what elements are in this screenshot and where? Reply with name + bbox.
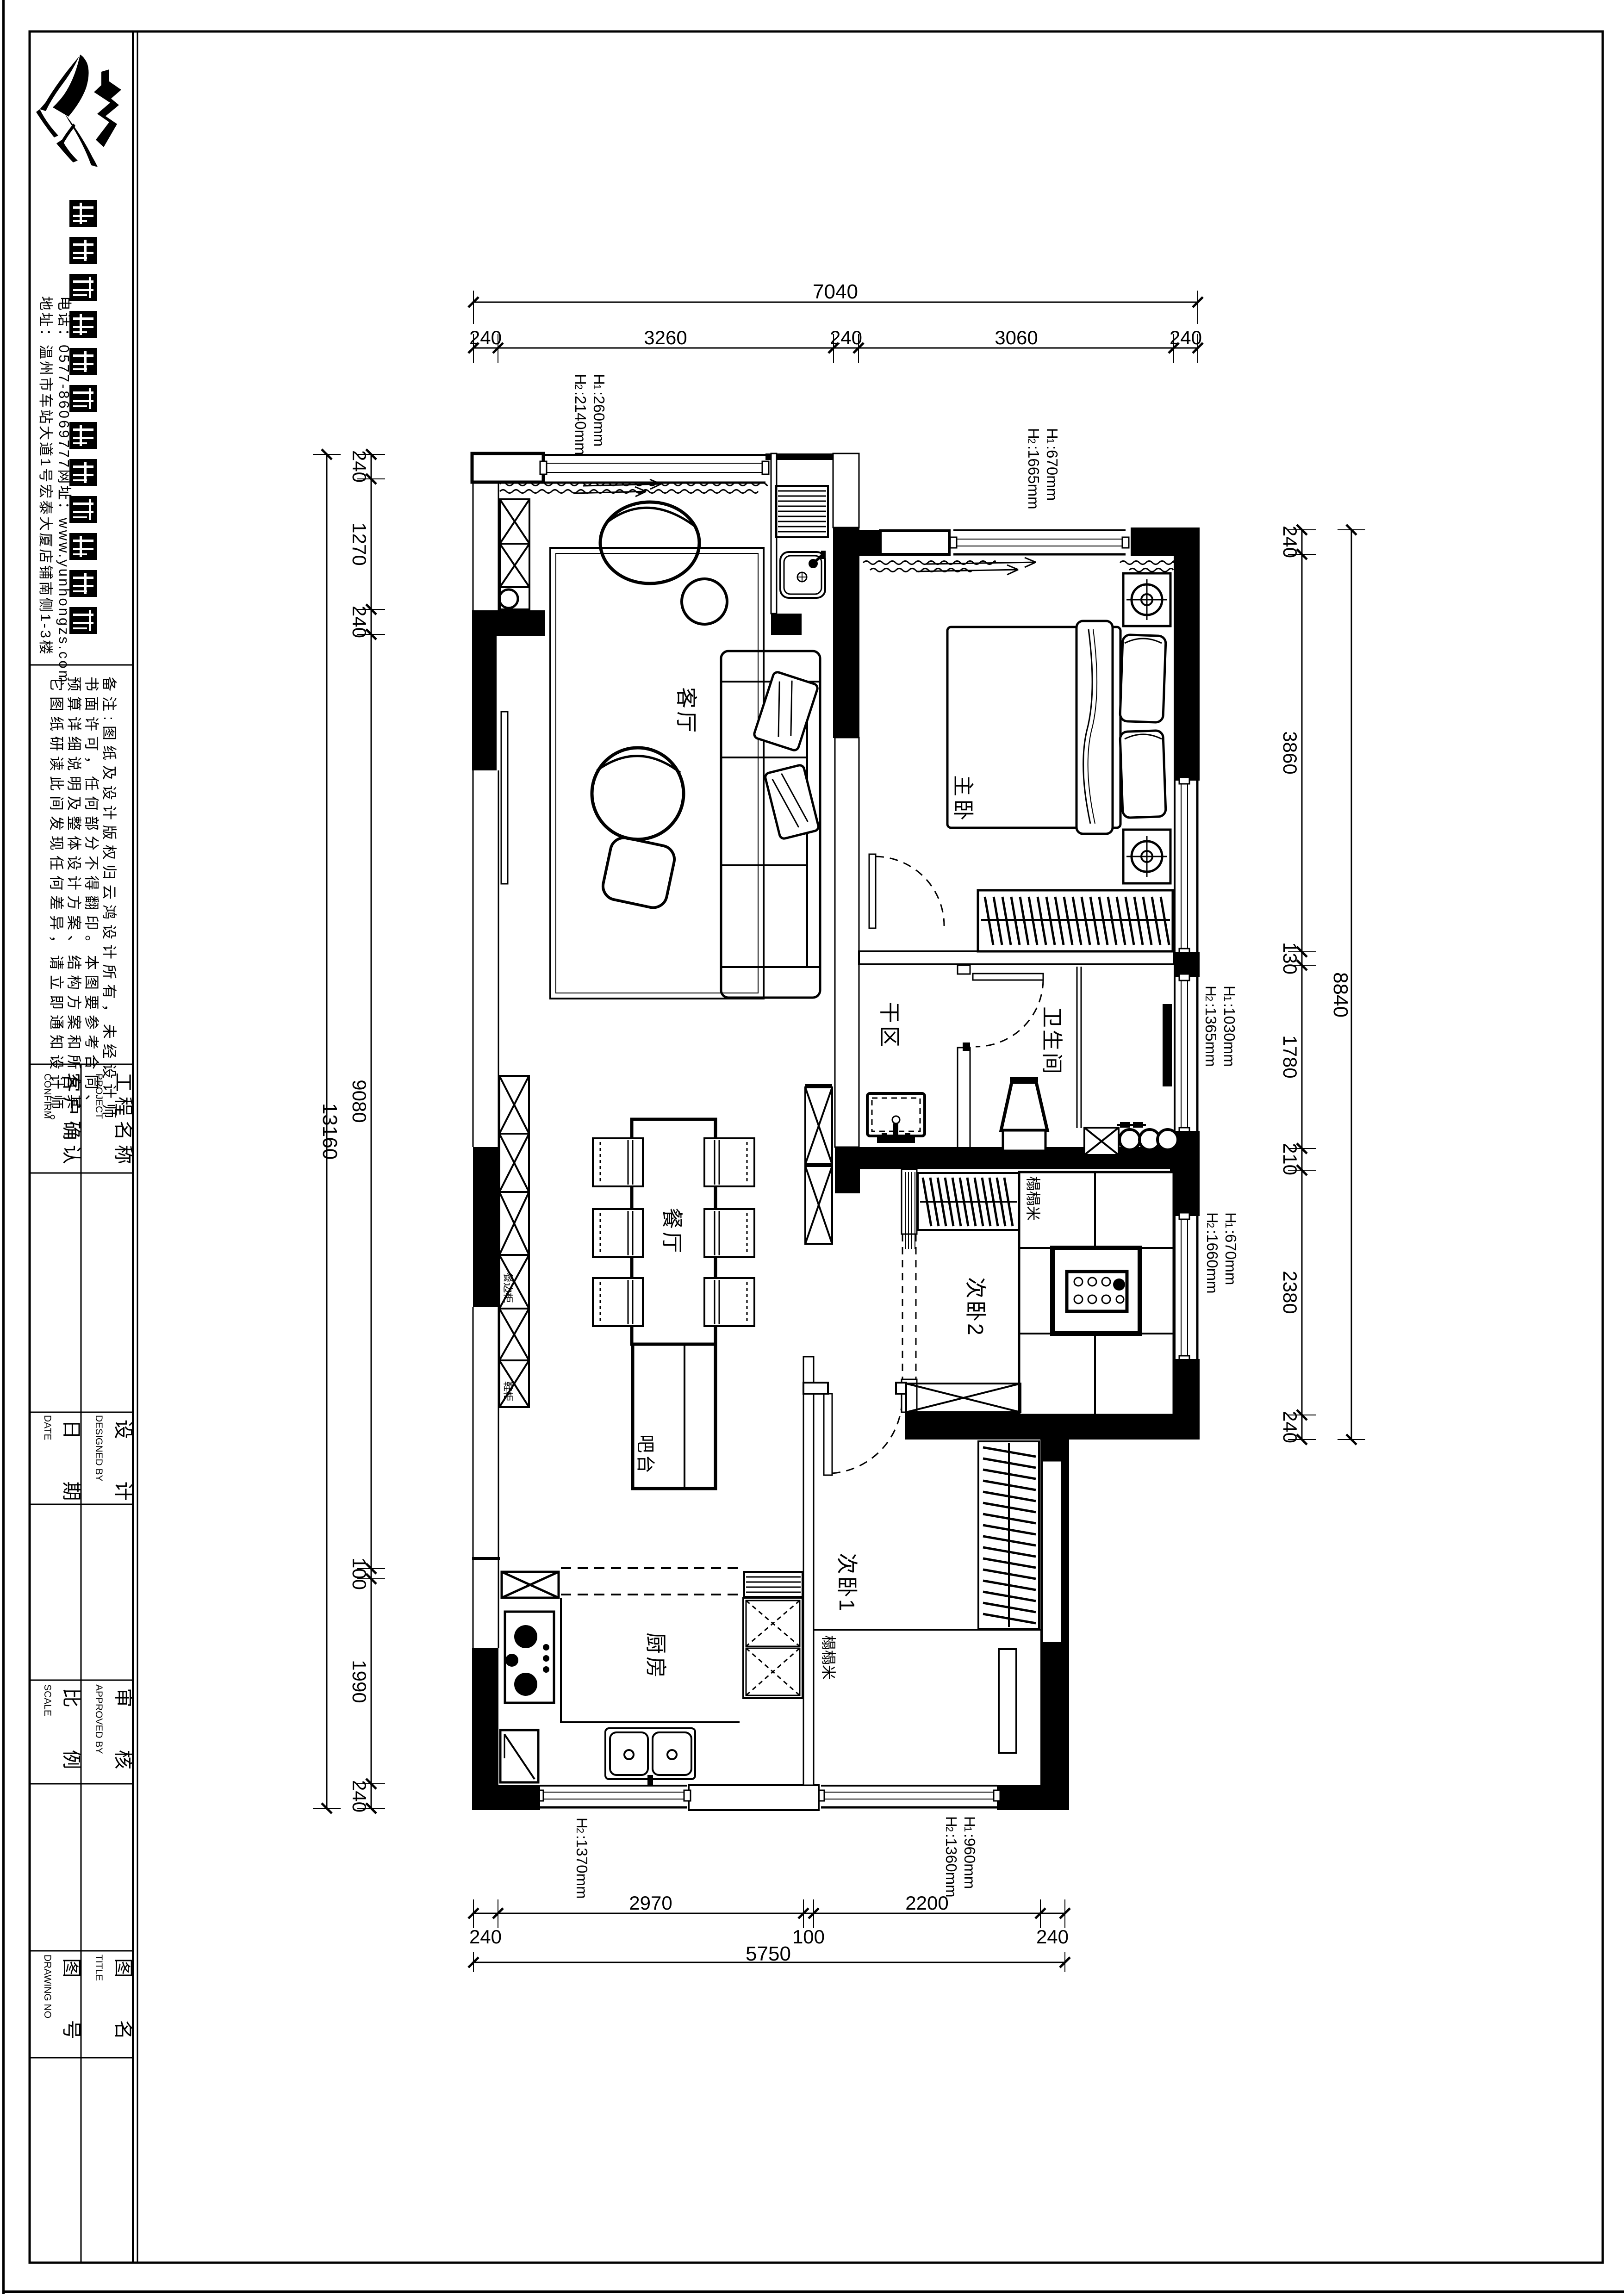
svg-text:7040: 7040 (813, 280, 858, 303)
svg-text:榻榻米: 榻榻米 (1025, 1176, 1041, 1221)
svg-text:设 计: 设 计 (112, 1420, 134, 1520)
svg-text:卫生间: 卫生间 (1040, 1006, 1064, 1076)
svg-text:2: 2 (1205, 1222, 1216, 1228)
svg-text:鞋柜: 鞋柜 (502, 1381, 514, 1402)
svg-text:PROJECT: PROJECT (93, 1074, 104, 1119)
svg-text:比 例: 比 例 (61, 1688, 82, 1788)
svg-text:2: 2 (1026, 438, 1038, 444)
svg-text:H: H (1222, 1212, 1239, 1223)
svg-text:次卧2: 次卧2 (964, 1277, 988, 1337)
svg-text:240: 240 (1279, 1411, 1301, 1443)
svg-text:240: 240 (469, 1926, 502, 1948)
svg-text:2970: 2970 (629, 1892, 672, 1914)
svg-text:240: 240 (1279, 526, 1301, 558)
svg-text::1665mm: :1665mm (1025, 446, 1042, 509)
svg-text:H: H (573, 1818, 591, 1829)
svg-text:H: H (1202, 986, 1220, 997)
svg-text:9080: 9080 (348, 1080, 370, 1123)
svg-text::260mm: :260mm (591, 391, 608, 447)
svg-text:CONFIRM: CONFIRM (42, 1074, 53, 1119)
svg-text:DATE: DATE (42, 1415, 53, 1440)
svg-text:2380: 2380 (1279, 1271, 1301, 1314)
svg-text:主卧: 主卧 (951, 775, 975, 823)
svg-text::960mm: :960mm (961, 1834, 978, 1889)
svg-text:H: H (1221, 986, 1238, 997)
svg-text:客厅: 客厅 (674, 687, 698, 735)
svg-text::1030mm: :1030mm (1221, 1003, 1238, 1067)
svg-text:厨房: 厨房 (644, 1632, 668, 1681)
svg-text:审 核: 审 核 (112, 1688, 134, 1788)
svg-text:备注:图纸及设计版权归云鸿设计所有，未经设计师: 备注:图纸及设计版权归云鸿设计所有，未经设计师 (101, 676, 118, 1123)
svg-text:240: 240 (1170, 327, 1202, 348)
svg-text:2: 2 (573, 384, 585, 390)
svg-text::670mm: :670mm (1222, 1230, 1239, 1285)
svg-text:餐边柜: 餐边柜 (502, 1272, 514, 1303)
svg-text:240: 240 (469, 327, 502, 348)
svg-text:1270: 1270 (348, 522, 370, 565)
svg-text:日 期: 日 期 (61, 1420, 82, 1520)
svg-text::670mm: :670mm (1044, 446, 1061, 501)
svg-text:100: 100 (792, 1926, 825, 1948)
svg-text:图 号: 图 号 (61, 1958, 82, 2058)
svg-text:客户确认: 客户确认 (61, 1073, 82, 1169)
svg-text:8840: 8840 (1329, 972, 1352, 1018)
svg-text:H: H (572, 374, 589, 385)
svg-text:2: 2 (574, 1828, 586, 1833)
svg-text:3060: 3060 (995, 327, 1038, 348)
svg-text:3860: 3860 (1279, 731, 1301, 774)
svg-text::2140mm: :2140mm (572, 391, 589, 455)
svg-text:SCALE: SCALE (42, 1684, 53, 1716)
svg-text:5750: 5750 (746, 1942, 791, 1965)
svg-text:240: 240 (348, 1780, 370, 1812)
svg-text:H: H (1025, 428, 1042, 439)
svg-text:H: H (1044, 428, 1061, 439)
svg-text::1365mm: :1365mm (1202, 1003, 1220, 1067)
svg-text:它图纸研读此间发现任何差异，请立即通知设计师。: 它图纸研读此间发现任何差异，请立即通知设计师。 (48, 676, 65, 1134)
svg-text:榻榻米: 榻榻米 (820, 1635, 837, 1680)
svg-text:H: H (961, 1816, 978, 1827)
svg-text:H: H (943, 1816, 960, 1827)
svg-text:TITLE: TITLE (93, 1955, 104, 1981)
svg-text:工程名称: 工程名称 (112, 1073, 134, 1169)
svg-text::1360mm: :1360mm (943, 1834, 960, 1898)
svg-text:DESIGNED BY: DESIGNED BY (93, 1415, 104, 1482)
svg-text:240: 240 (1036, 1926, 1069, 1948)
svg-text:210: 210 (1279, 1143, 1301, 1175)
svg-text:书面许可，任何部分不得翻印。本图要参考合同、: 书面许可，任何部分不得翻印。本图要参考合同、 (83, 676, 100, 1114)
svg-text:APPROVED BY: APPROVED BY (93, 1684, 104, 1754)
svg-text:240: 240 (348, 450, 370, 483)
svg-text:图 名: 图 名 (112, 1958, 134, 2058)
svg-text:地址：温州市车站大道1号宏泰大厦店铺南侧1-3楼: 地址：温州市车站大道1号宏泰大厦店铺南侧1-3楼 (37, 296, 54, 656)
svg-text:2: 2 (1203, 996, 1215, 1001)
svg-text:电话：0577-86069777网址：www.yunhong: 电话：0577-86069777网址：www.yunhongzs.com (56, 296, 72, 684)
svg-text:1780: 1780 (1279, 1035, 1301, 1078)
svg-text:DRAWING NO: DRAWING NO (42, 1955, 53, 2018)
svg-text:240: 240 (830, 327, 862, 348)
svg-text:240: 240 (348, 606, 370, 638)
svg-text:3260: 3260 (644, 327, 687, 348)
svg-text:2200: 2200 (905, 1892, 948, 1914)
svg-text:2: 2 (944, 1826, 955, 1832)
svg-text:1990: 1990 (348, 1660, 370, 1703)
svg-text:预算详细说明及整体设计方案、结构方案和所有其: 预算详细说明及整体设计方案、结构方案和所有其 (66, 676, 82, 1114)
svg-text:13160: 13160 (318, 1103, 341, 1160)
svg-text:餐厅: 餐厅 (660, 1208, 684, 1256)
svg-text::1660mm: :1660mm (1204, 1230, 1221, 1294)
svg-text:130: 130 (1279, 942, 1301, 974)
svg-text:1: 1 (591, 384, 603, 390)
svg-text:1: 1 (1045, 438, 1056, 444)
svg-text:1: 1 (1223, 1222, 1235, 1228)
svg-text:100: 100 (348, 1558, 370, 1590)
svg-text:H: H (591, 374, 608, 385)
svg-text:H: H (1204, 1212, 1221, 1223)
svg-text:次卧1: 次卧1 (835, 1553, 859, 1613)
svg-text:1: 1 (1222, 996, 1233, 1001)
svg-text:干区: 干区 (877, 1002, 902, 1050)
svg-text::1370mm: :1370mm (573, 1835, 591, 1899)
svg-text:吧台: 吧台 (635, 1434, 655, 1475)
svg-text:1: 1 (962, 1826, 974, 1832)
